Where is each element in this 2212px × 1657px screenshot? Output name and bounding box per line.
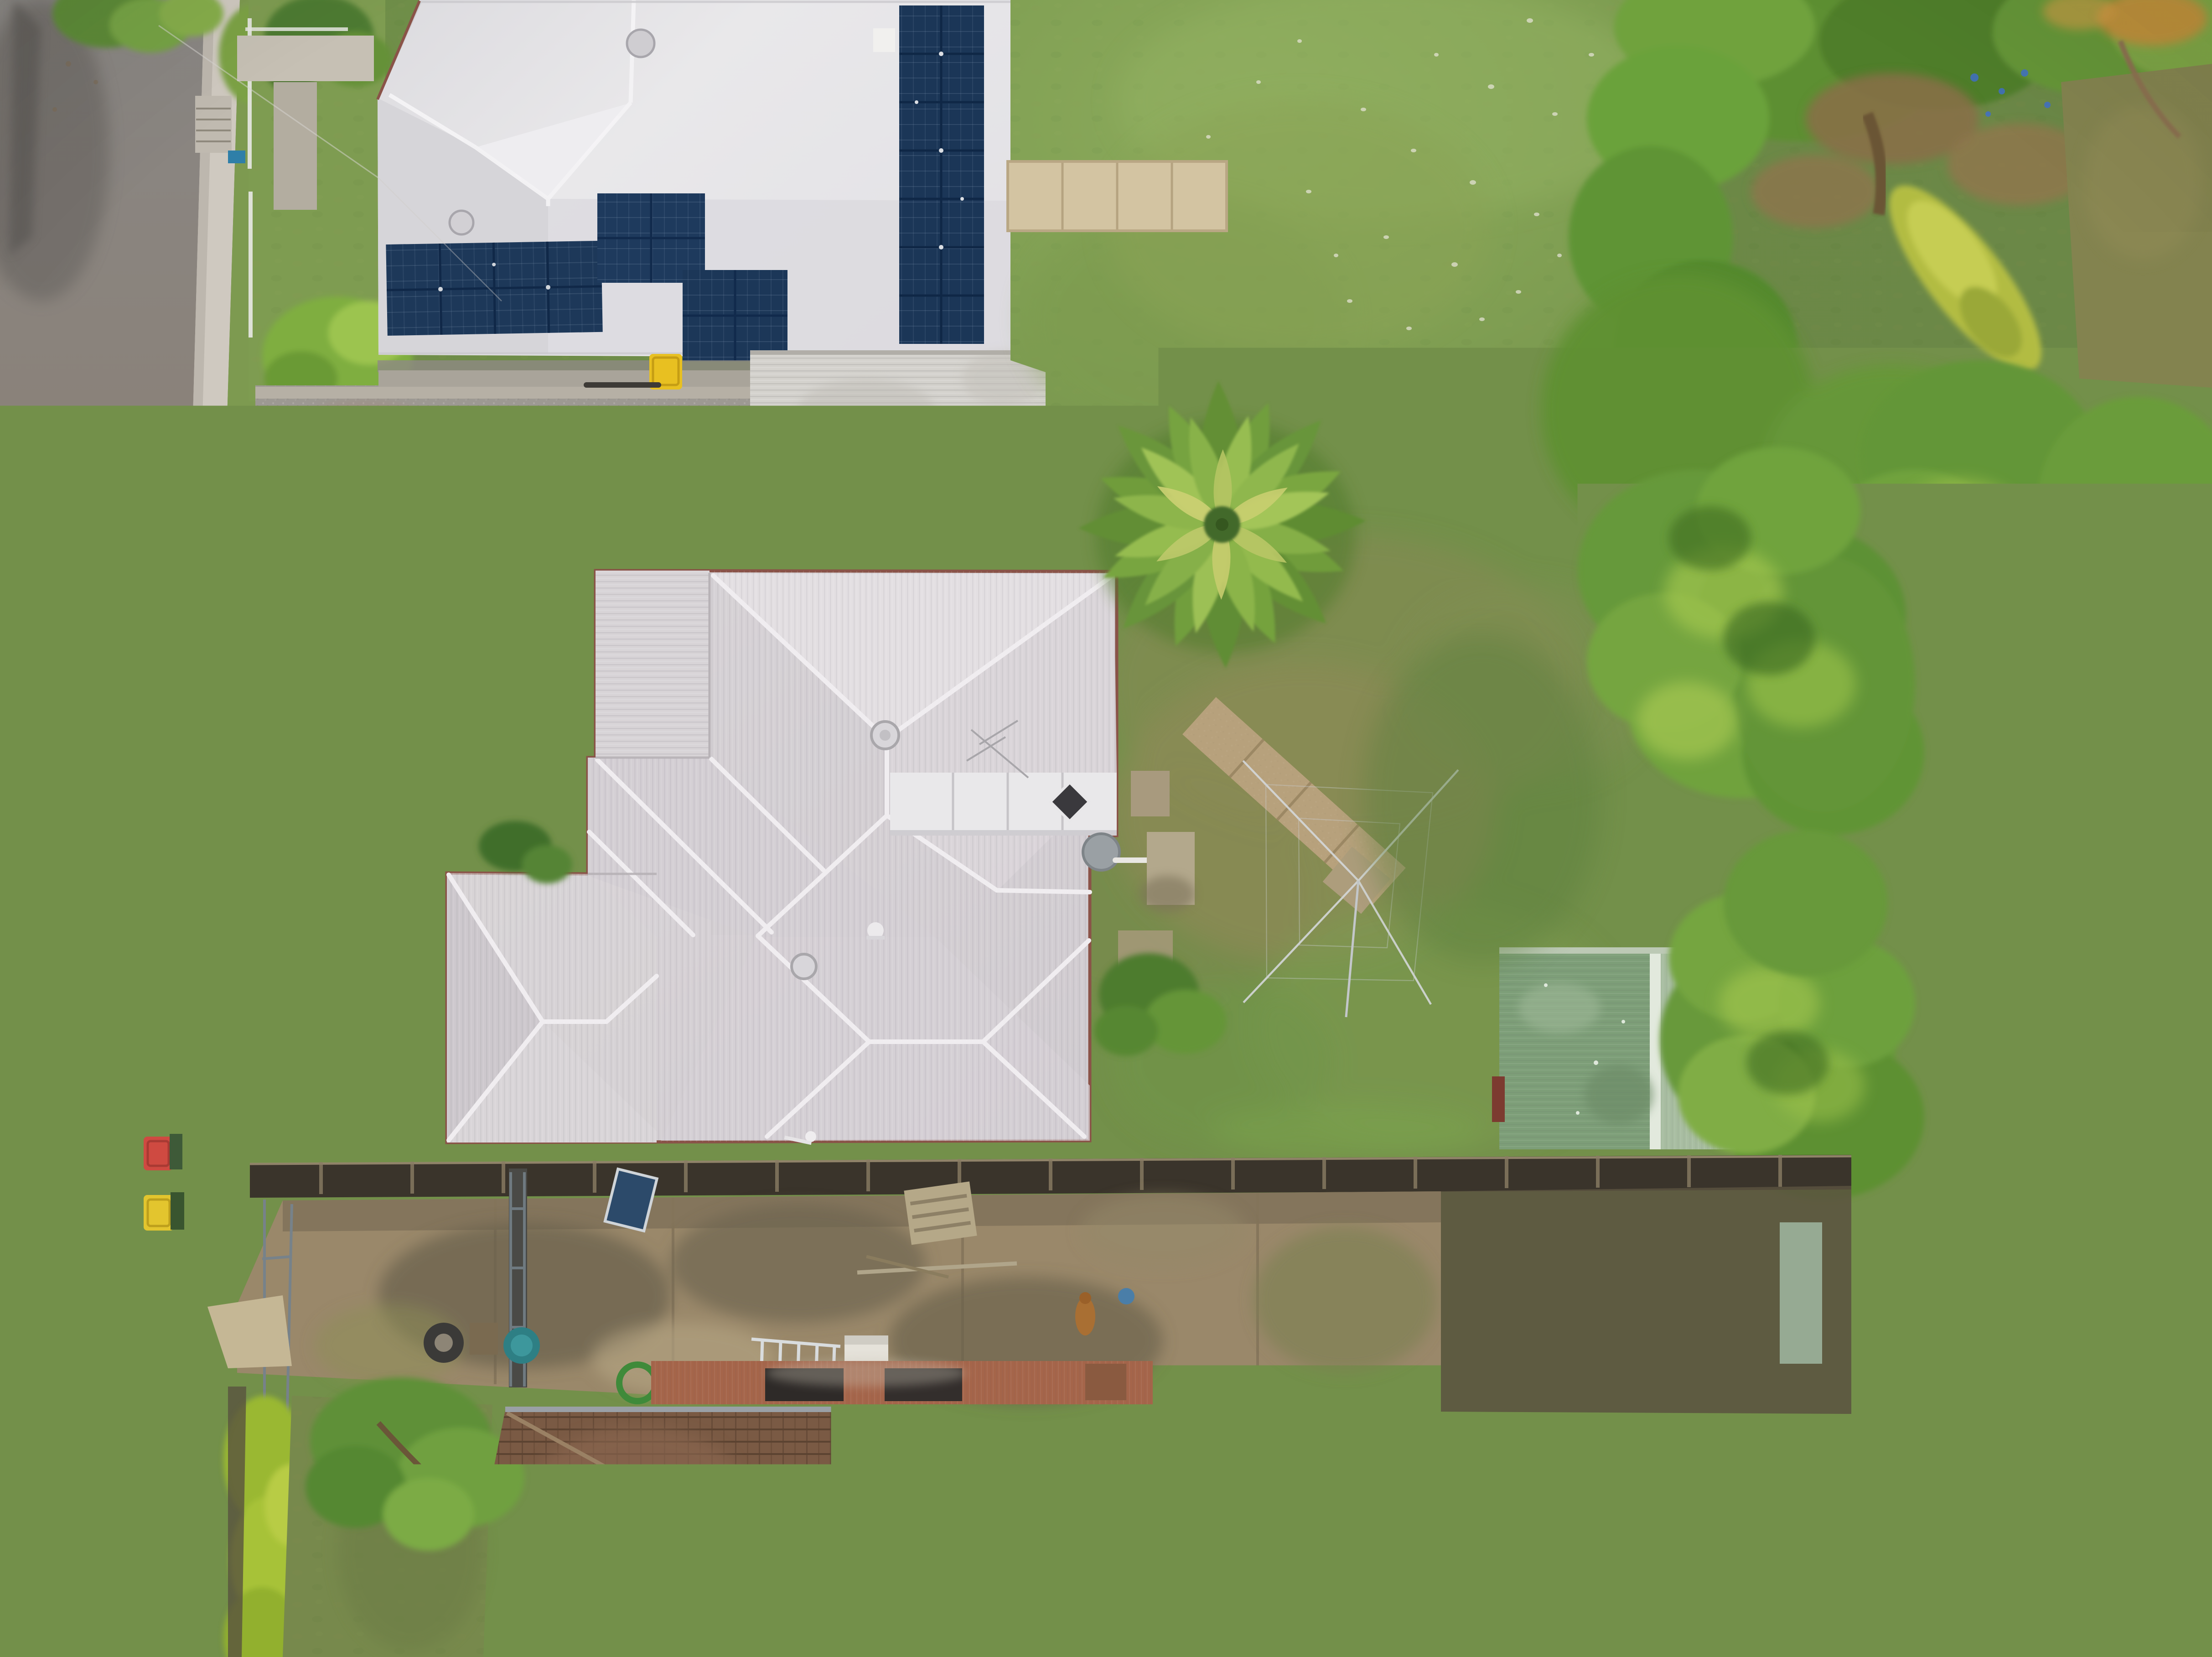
svg-text:REALTY: REALTY [193,1591,539,1633]
svg-text:ANCHOR: ANCHOR [192,1495,518,1588]
